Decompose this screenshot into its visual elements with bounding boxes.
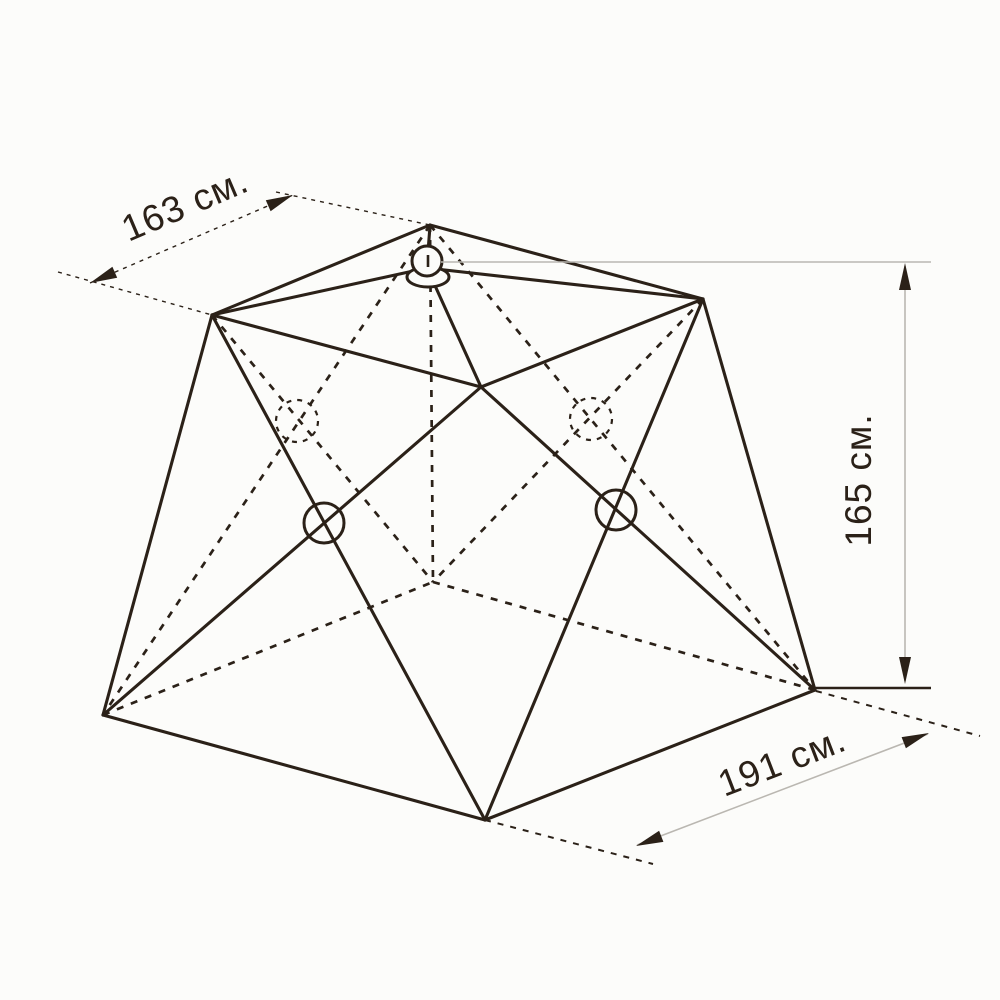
dimension-labels: 163 см.165 см.191 см. xyxy=(116,160,879,805)
diagram-canvas: 163 см.165 см.191 см. xyxy=(0,0,1000,1000)
edge-floor-edge-back-left xyxy=(103,582,433,715)
dim-top-width-witness-0 xyxy=(58,272,212,315)
dim-label-bottom-width: 191 см. xyxy=(712,718,851,804)
edge-hub-rib-left xyxy=(212,268,427,315)
edge-scissor-back-right-wall-a xyxy=(433,299,703,582)
edge-pole-right xyxy=(703,299,815,690)
dim-bottom-width-arrowhead-0 xyxy=(636,831,663,846)
edge-roof-edge-front-right xyxy=(481,299,703,387)
edge-scissor-back-right-wall-b xyxy=(430,225,815,690)
edge-scissor-left-wall-a xyxy=(212,315,485,820)
edge-scissor-back-left-wall-b xyxy=(103,225,430,715)
dim-bottom-width-arrowhead-1 xyxy=(902,733,929,748)
dim-label-height: 165 см. xyxy=(838,413,879,546)
edge-pole-left xyxy=(103,315,212,715)
hidden-frame-edges xyxy=(103,225,815,715)
edge-roof-edge-back-left xyxy=(212,225,430,315)
dim-label-top-width: 163 см. xyxy=(116,160,255,250)
edge-floor-edge-front-left xyxy=(103,715,485,820)
dim-top-width-arrowhead-0 xyxy=(90,267,117,283)
scissor-pivot-circles xyxy=(276,398,636,543)
edge-roof-edge-front-left xyxy=(212,315,481,387)
apex-hub xyxy=(407,226,449,287)
edge-hub-rib-right xyxy=(427,268,703,299)
edge-scissor-left-wall-b xyxy=(103,387,481,715)
visible-frame-edges xyxy=(103,225,815,820)
tent-frame-dimension-diagram: 163 см.165 см.191 см. xyxy=(0,0,1000,1000)
dim-height-arrowhead-1 xyxy=(899,657,911,684)
dim-top-width-arrowhead-1 xyxy=(266,195,293,211)
dim-top-width-witness-1 xyxy=(276,192,430,225)
dim-bottom-width-witness-0 xyxy=(485,820,653,864)
dim-height-arrowhead-0 xyxy=(899,263,911,290)
